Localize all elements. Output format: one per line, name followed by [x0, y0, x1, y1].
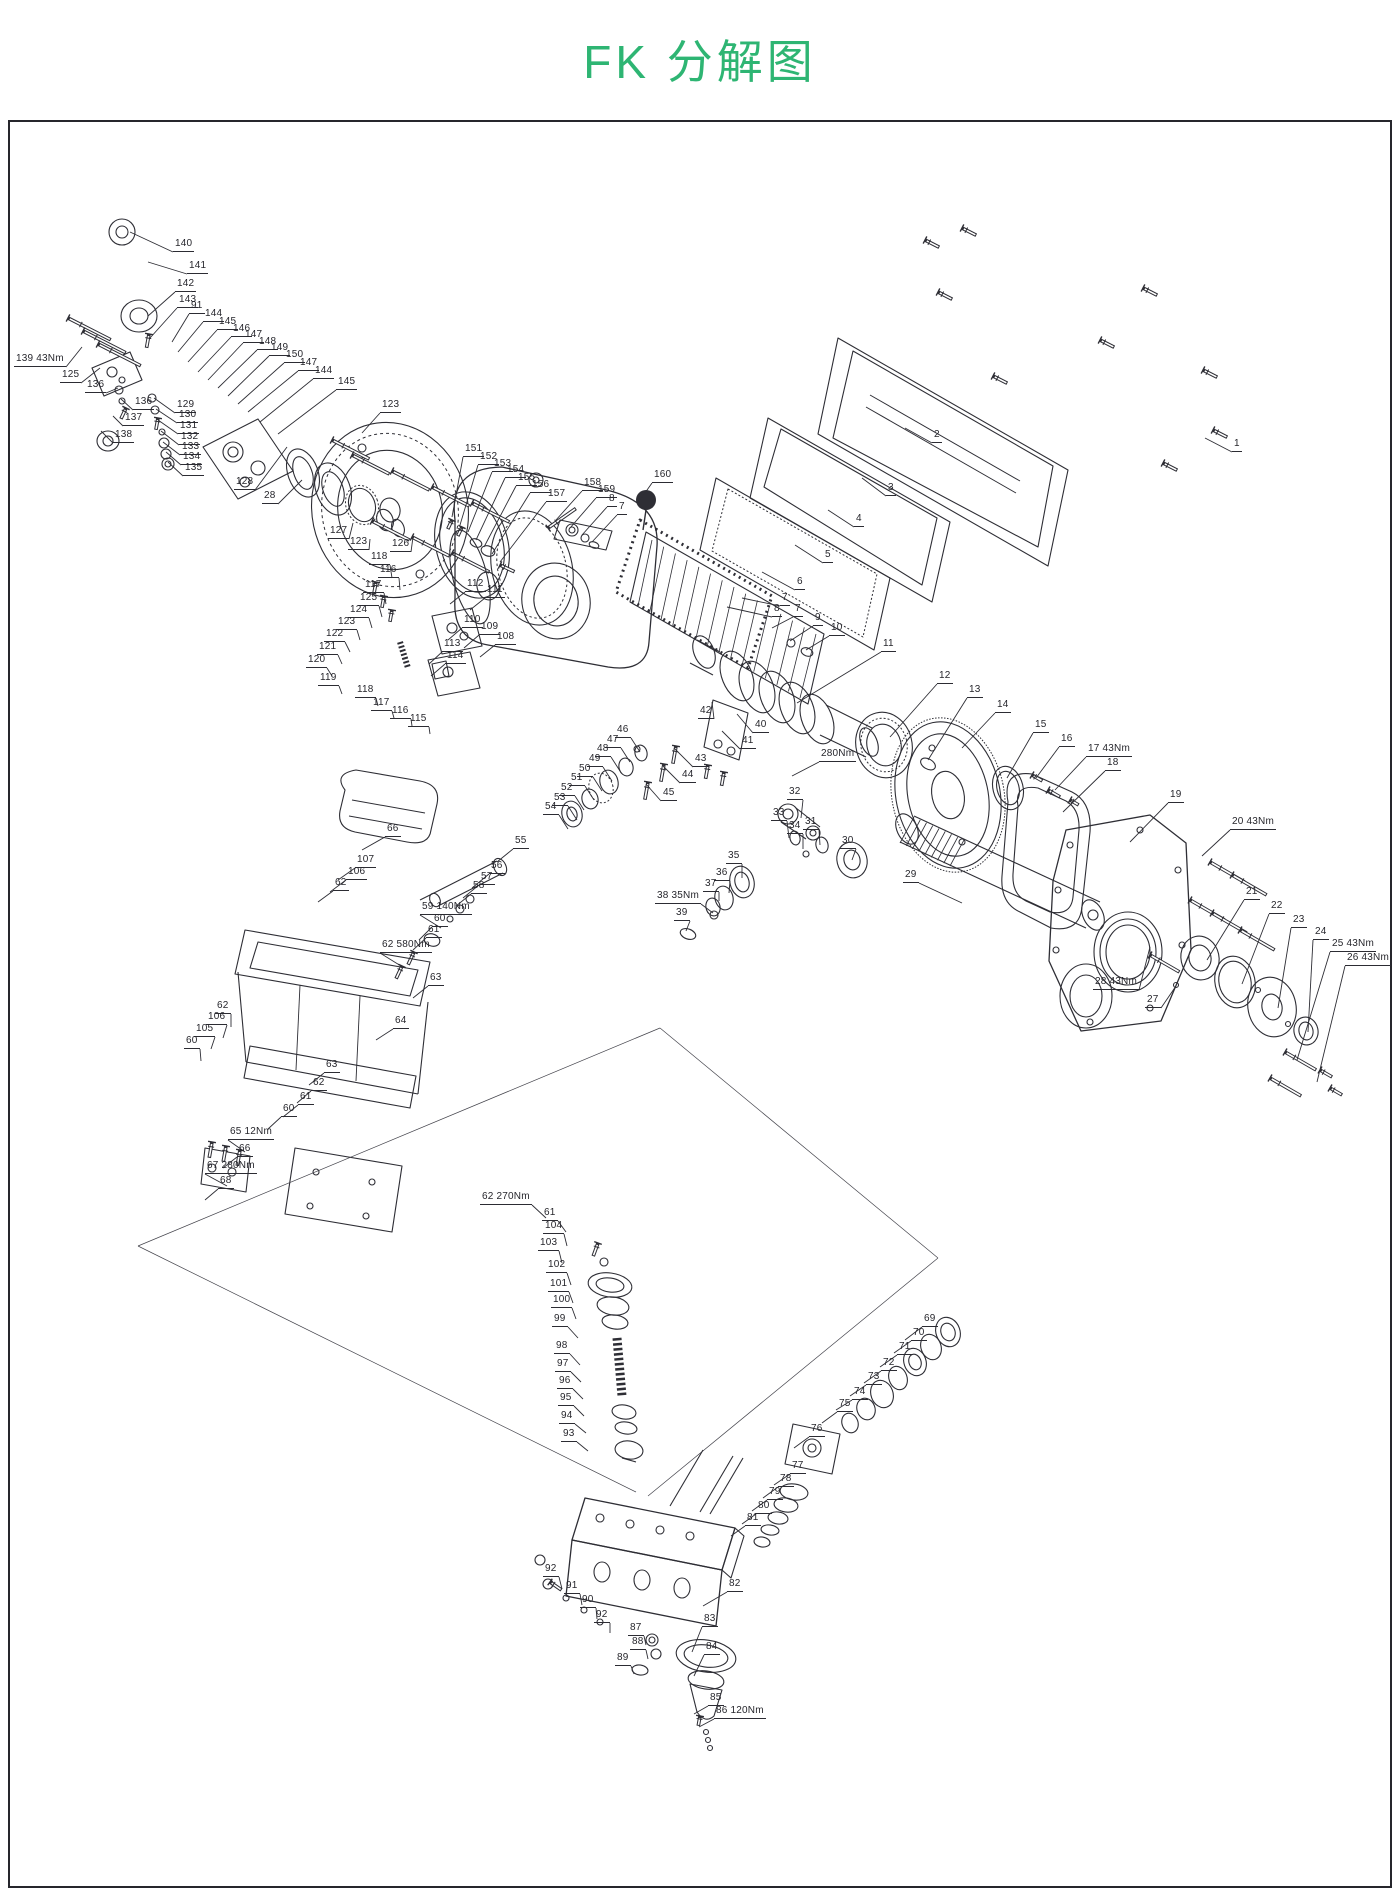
part-callout: 11	[881, 638, 896, 652]
part-callout: 115	[408, 713, 429, 727]
part-callout: 65 12Nm	[228, 1126, 274, 1140]
part-callout: 137	[123, 412, 144, 426]
part-callout: 71	[897, 1341, 913, 1355]
part-callout: 123	[348, 536, 369, 550]
part-callout: 19	[1168, 789, 1184, 803]
part-callout: 25 43Nm	[1330, 938, 1376, 952]
part-callout: 77	[790, 1460, 806, 1474]
part-callout: 1	[1232, 438, 1242, 452]
part-callout: 100	[551, 1294, 572, 1308]
part-callout: 79	[767, 1486, 783, 1500]
part-callout: 98	[554, 1340, 570, 1354]
part-callout: 16	[1059, 733, 1075, 747]
part-callout: 6	[795, 576, 805, 590]
part-callout: 8	[607, 493, 617, 507]
part-callout: 93	[561, 1428, 577, 1442]
part-callout: 58	[471, 880, 487, 894]
part-callout: 280Nm	[819, 748, 856, 762]
part-callout: 61	[426, 924, 442, 938]
part-callout: 136	[85, 379, 106, 393]
part-callout: 33	[771, 807, 787, 821]
part-callout: 144	[313, 365, 334, 379]
part-callout: 34	[787, 820, 803, 834]
part-callout: 55	[513, 835, 529, 849]
part-callout: 85	[708, 1692, 724, 1706]
part-callout: 10	[829, 622, 845, 636]
part-callout: 21	[1244, 886, 1260, 900]
part-callout: 125	[60, 369, 81, 383]
part-callout: 126	[390, 538, 411, 552]
part-callout: 118	[355, 684, 376, 698]
part-callout: 119	[318, 672, 339, 686]
part-callout: 41	[740, 735, 756, 749]
part-callout: 136	[133, 396, 154, 410]
part-callout: 90	[580, 1594, 596, 1608]
part-callout: 14	[995, 699, 1011, 713]
part-callout: 7	[793, 603, 803, 617]
part-callout: 118	[369, 551, 390, 565]
part-callout: 104	[543, 1220, 564, 1234]
part-callout: 89	[615, 1652, 631, 1666]
part-callout: 103	[538, 1237, 559, 1251]
part-callout: 117	[371, 697, 392, 711]
part-callout: 106	[346, 866, 367, 880]
part-callout: 26 43Nm	[1345, 952, 1391, 966]
part-callout: 66	[385, 823, 401, 837]
part-callout: 157	[546, 488, 567, 502]
part-callout: 4	[854, 513, 864, 527]
part-callout: 83	[702, 1613, 718, 1627]
part-callout: 78	[778, 1473, 794, 1487]
part-callout: 29	[903, 869, 919, 883]
part-callout: 35	[726, 850, 742, 864]
part-callout: 122	[324, 628, 345, 642]
part-callout: 23	[1291, 914, 1307, 928]
part-callout: 82	[727, 1578, 743, 1592]
part-callout: 97	[555, 1358, 571, 1372]
part-callout: 116	[378, 564, 399, 578]
part-callout: 60	[281, 1103, 297, 1117]
part-callout: 111	[485, 584, 505, 598]
part-callout: 84	[704, 1641, 720, 1655]
part-callout: 37	[703, 878, 719, 892]
page: FK 分解图 140141142143911441451461471481491…	[0, 0, 1400, 1895]
part-callout: 66	[237, 1143, 253, 1157]
part-callout: 32	[787, 786, 803, 800]
part-callout: 99	[552, 1313, 568, 1327]
part-callout: 70	[911, 1327, 927, 1341]
part-callout: 61	[542, 1207, 558, 1221]
part-callout: 87	[628, 1622, 644, 1636]
part-callout: 74	[852, 1386, 868, 1400]
part-callout: 114	[445, 650, 466, 664]
part-callout: 12	[937, 670, 953, 684]
part-callout: 67 280Nm	[205, 1160, 257, 1174]
part-callout: 112	[465, 578, 486, 592]
part-callout: 31	[803, 816, 819, 830]
part-callout: 142	[175, 278, 196, 292]
part-callout: 75	[837, 1398, 853, 1412]
part-callout: 69	[922, 1313, 938, 1327]
part-callout: 17 43Nm	[1086, 743, 1132, 757]
part-callout: 76	[809, 1423, 825, 1437]
part-callout: 28	[262, 490, 278, 504]
part-callout: 62	[311, 1077, 327, 1091]
part-callout: 101	[548, 1278, 569, 1292]
part-callout: 96	[557, 1375, 573, 1389]
part-callout: 81	[745, 1512, 761, 1526]
exploded-diagram	[0, 0, 1400, 1895]
part-callout: 121	[317, 641, 338, 655]
part-callout: 64	[393, 1015, 409, 1029]
part-callout: 138	[113, 429, 134, 443]
part-callout: 9	[813, 612, 823, 626]
part-callout: 108	[495, 631, 516, 645]
part-callout: 127	[328, 525, 349, 539]
part-callout: 45	[661, 787, 677, 801]
part-callout: 18	[1105, 757, 1121, 771]
part-callout: 7	[617, 501, 627, 515]
part-callout: 44	[680, 769, 696, 783]
part-callout: 38 35Nm	[655, 890, 701, 904]
part-callout: 92	[543, 1563, 559, 1577]
part-callout: 68	[218, 1175, 234, 1189]
part-callout: 39	[674, 907, 690, 921]
part-callout: 40	[753, 719, 769, 733]
part-callout: 61	[298, 1091, 314, 1105]
part-callout: 62	[333, 877, 349, 891]
part-callout: 95	[558, 1392, 574, 1406]
part-callout: 62 580Nm	[380, 939, 432, 953]
part-callout: 15	[1033, 719, 1049, 733]
part-callout: 72	[881, 1357, 897, 1371]
part-callout: 102	[546, 1259, 567, 1273]
part-callout: 20 43Nm	[1230, 816, 1276, 830]
part-callout: 88	[630, 1636, 646, 1650]
part-callout: 42	[698, 705, 714, 719]
part-callout: 120	[306, 654, 327, 668]
part-callout: 43	[693, 753, 709, 767]
part-callout: 135	[183, 462, 204, 476]
part-callout: 22	[1269, 900, 1285, 914]
part-callout: 123	[380, 399, 401, 413]
part-callout: 2	[932, 429, 942, 443]
part-callout: 94	[559, 1410, 575, 1424]
part-callout: 91	[564, 1580, 580, 1594]
part-callout: 8	[772, 603, 782, 617]
part-callout: 63	[428, 972, 444, 986]
part-callout: 160	[652, 469, 673, 483]
part-callout: 140	[173, 238, 194, 252]
part-callout: 145	[336, 376, 357, 390]
part-callout: 62 270Nm	[480, 1191, 532, 1205]
part-callout: 5	[823, 549, 833, 563]
part-callout: 139 43Nm	[14, 353, 66, 367]
part-callout: 141	[187, 260, 208, 274]
part-callout: 73	[866, 1371, 882, 1385]
part-callout: 63	[324, 1059, 340, 1073]
part-callout: 13	[967, 684, 983, 698]
part-callout: 60	[184, 1035, 200, 1049]
part-callout: 54	[543, 801, 559, 815]
part-callout: 3	[886, 482, 896, 496]
part-callout: 92	[594, 1609, 610, 1623]
part-callout: 30	[840, 835, 856, 849]
part-callout: 117	[363, 579, 384, 593]
part-callout: 28 43Nm	[1093, 976, 1139, 990]
part-callout: 86 120Nm	[714, 1705, 766, 1719]
part-callout: 24	[1313, 926, 1329, 940]
part-callout: 128	[234, 476, 255, 490]
part-callout: 27	[1145, 994, 1161, 1008]
